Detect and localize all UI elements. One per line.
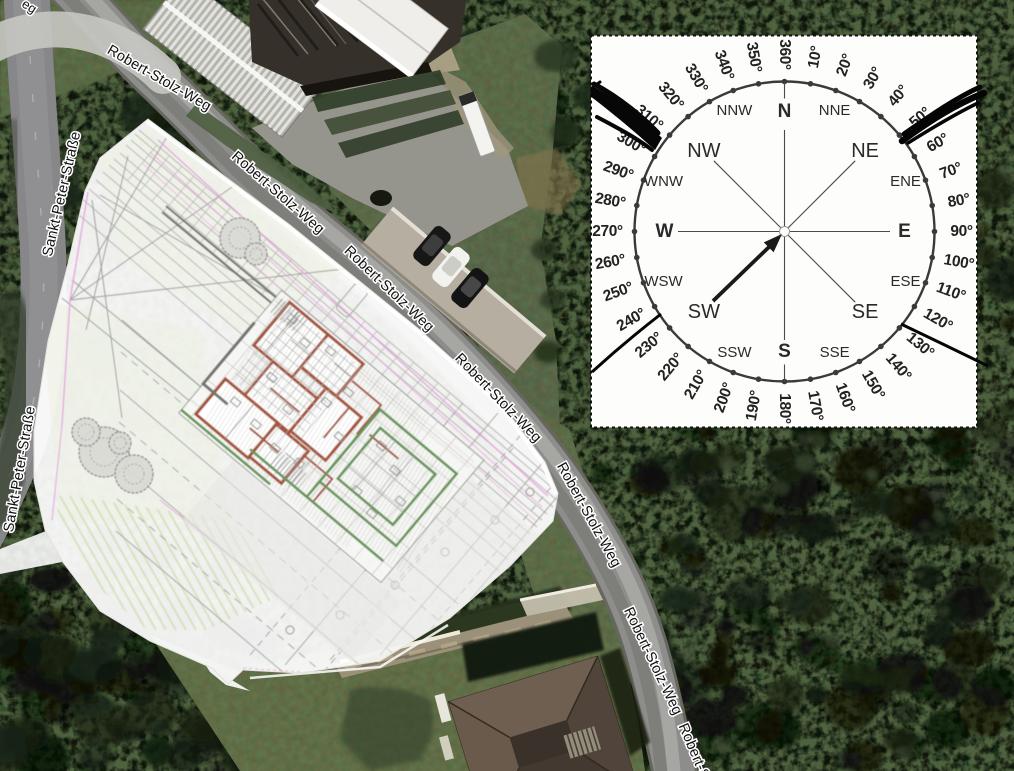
svg-text:SSE: SSE [820,344,850,361]
svg-text:ENE: ENE [890,173,921,190]
svg-text:360°: 360° [776,39,793,70]
svg-text:N: N [778,101,792,122]
svg-text:90°: 90° [950,223,972,240]
svg-text:NNE: NNE [819,102,851,119]
svg-text:SW: SW [688,301,720,323]
svg-text:E: E [898,221,911,242]
svg-text:WNW: WNW [644,173,684,190]
svg-text:180°: 180° [776,393,793,424]
svg-text:NW: NW [687,140,720,162]
svg-text:NE: NE [851,140,879,162]
svg-text:WSW: WSW [644,273,683,290]
svg-text:NNW: NNW [716,102,753,119]
svg-text:270°: 270° [592,223,623,240]
svg-text:SE: SE [852,301,879,323]
svg-text:W: W [656,221,674,242]
svg-text:ESE: ESE [890,273,920,290]
svg-text:SSW: SSW [717,344,752,361]
svg-text:S: S [778,341,791,362]
